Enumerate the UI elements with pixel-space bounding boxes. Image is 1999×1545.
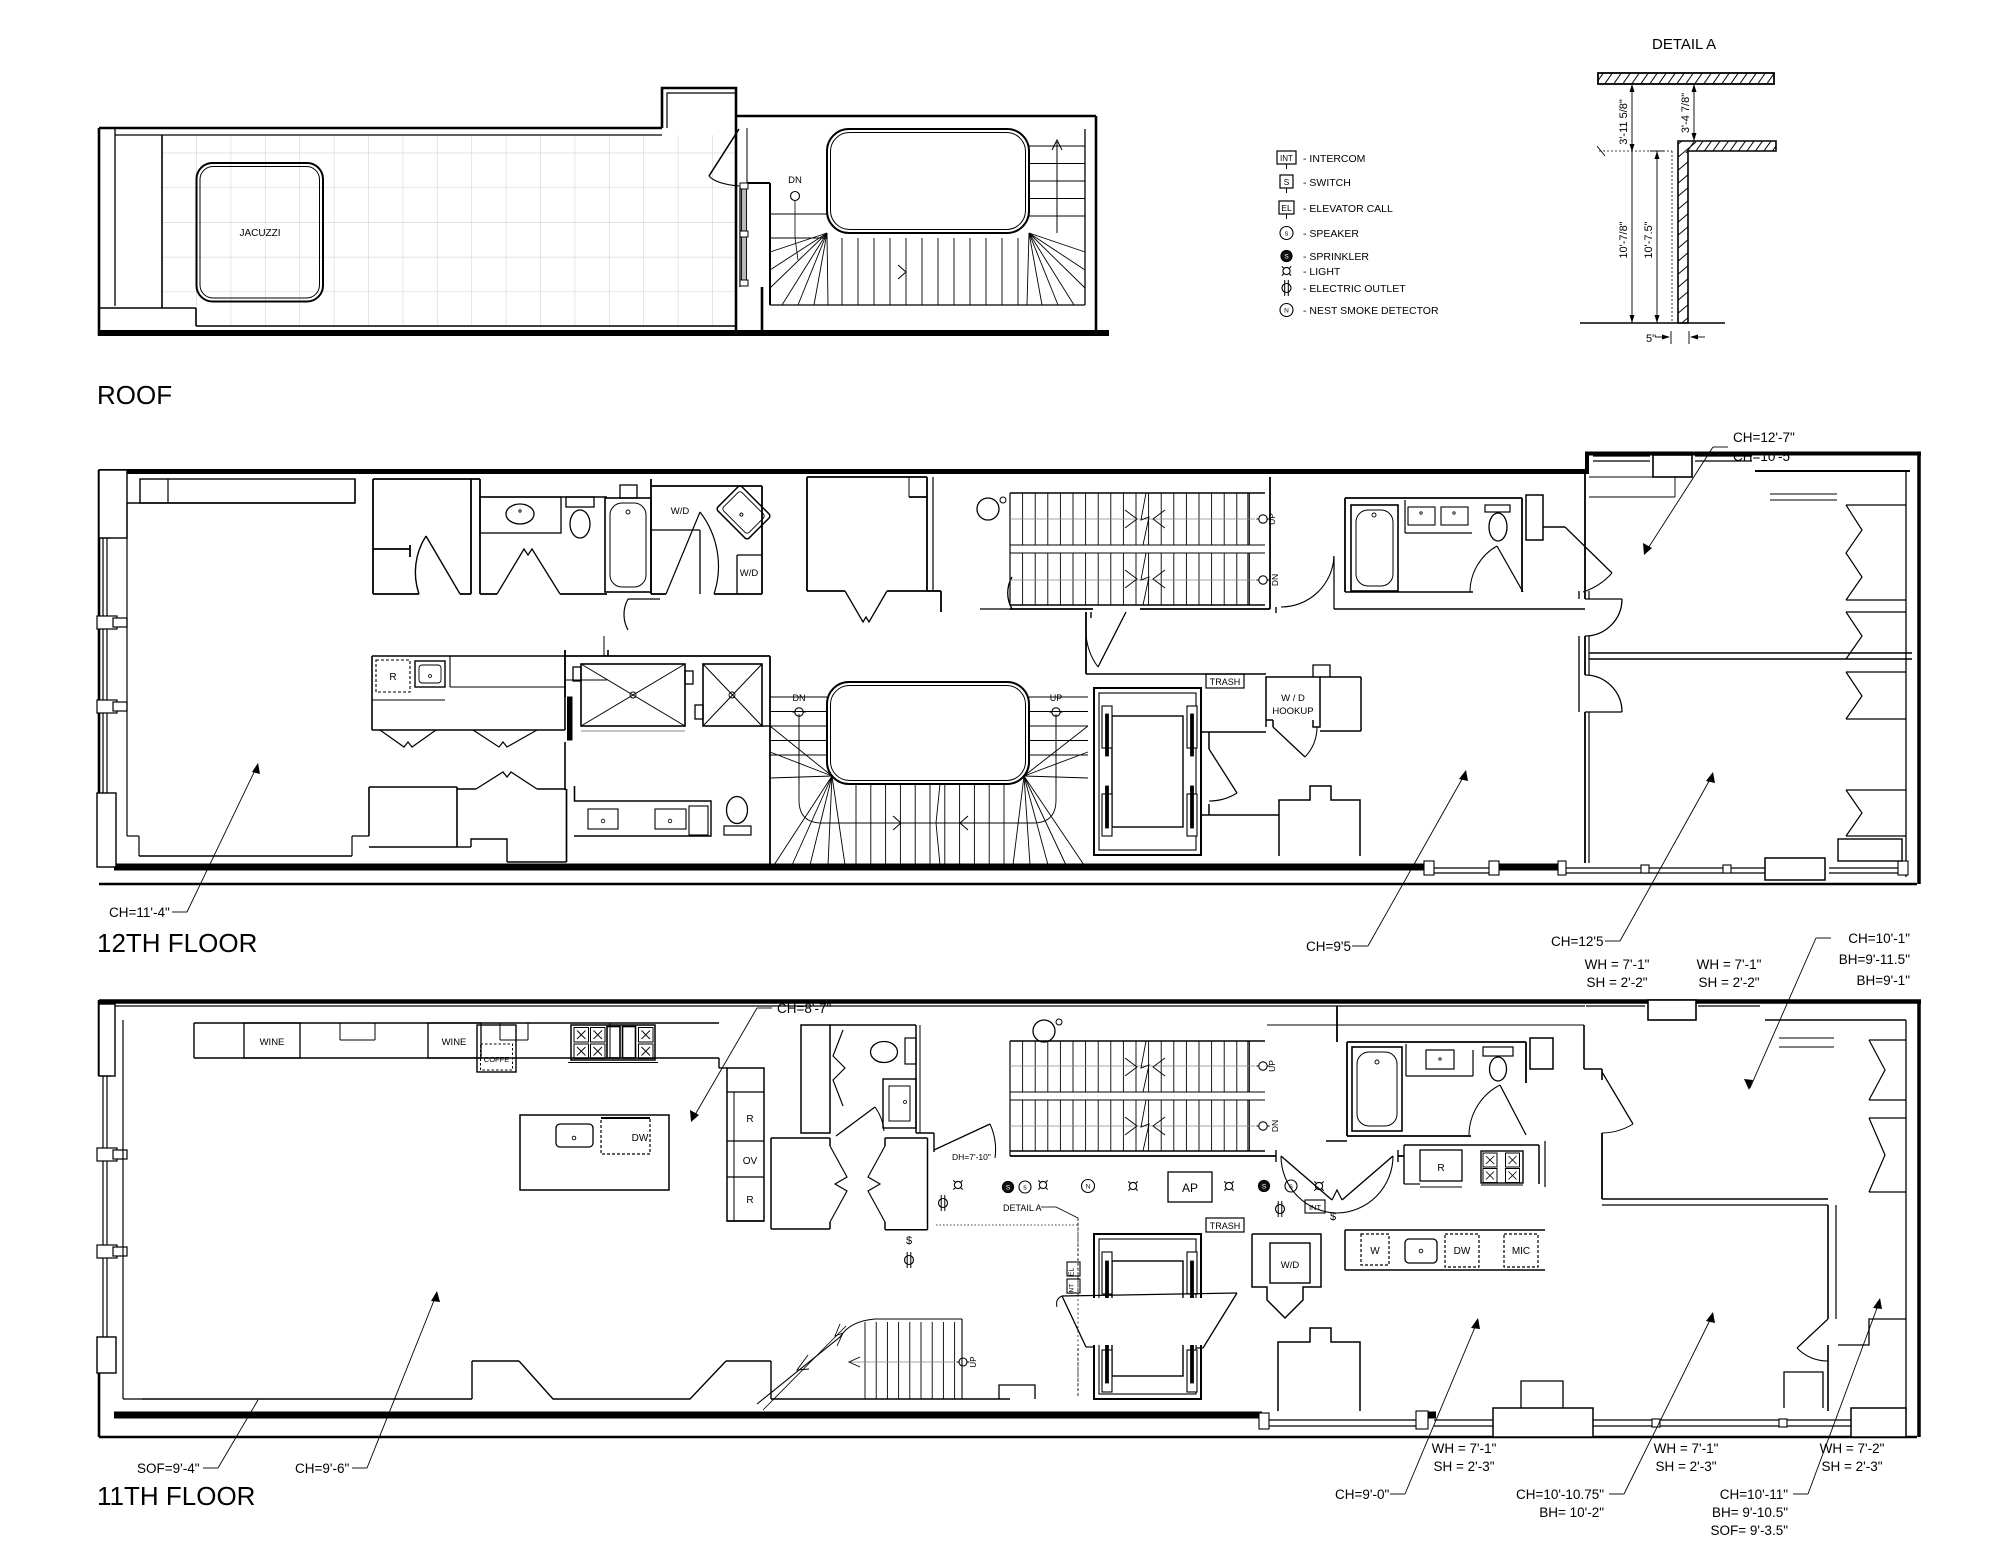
svg-text:DN: DN <box>788 175 802 186</box>
svg-text:CH=10'-1": CH=10'-1" <box>1848 931 1910 946</box>
svg-text:S: S <box>1006 1184 1011 1191</box>
svg-text:CH=10'-10.75": CH=10'-10.75" <box>1516 1487 1604 1502</box>
svg-text:INT: INT <box>1280 154 1293 163</box>
svg-text:R: R <box>746 1114 753 1125</box>
svg-text:5": 5" <box>1646 333 1656 345</box>
svg-text:COFFE: COFFE <box>484 1055 509 1064</box>
svg-text:BH= 10'-2": BH= 10'-2" <box>1539 1505 1604 1520</box>
svg-text:10'-7/8": 10'-7/8" <box>1618 221 1630 258</box>
svg-text:HOOKUP: HOOKUP <box>1272 706 1313 717</box>
svg-text:MIC: MIC <box>1512 1246 1530 1257</box>
svg-text:UP: UP <box>1050 693 1063 703</box>
svg-text:WH = 7'-1": WH = 7'-1" <box>1432 1441 1497 1456</box>
svg-text:S: S <box>1284 177 1290 187</box>
svg-text:R: R <box>746 1195 753 1206</box>
svg-text:WINE: WINE <box>442 1037 467 1048</box>
svg-text:3'-4 7/8": 3'-4 7/8" <box>1680 93 1692 133</box>
svg-text:W/D: W/D <box>671 506 690 517</box>
svg-text:CH=12'5: CH=12'5 <box>1551 934 1603 949</box>
svg-text:S: S <box>1284 253 1289 260</box>
svg-text:3'-11 5/8": 3'-11 5/8" <box>1618 99 1630 145</box>
svg-text:CH=9'-0": CH=9'-0" <box>1335 1487 1389 1502</box>
svg-text:AP: AP <box>1182 1181 1198 1195</box>
svg-text:SOF= 9'-3.5": SOF= 9'-3.5" <box>1710 1523 1788 1538</box>
svg-text:WH = 7'-1": WH = 7'-1" <box>1585 957 1650 972</box>
svg-text:BH=9'-11.5": BH=9'-11.5" <box>1839 952 1910 967</box>
svg-text:INT: INT <box>1069 1284 1076 1295</box>
svg-text:- SWITCH: - SWITCH <box>1303 177 1351 189</box>
svg-text:- INTERCOM: - INTERCOM <box>1303 153 1365 165</box>
svg-text:s: s <box>1023 1185 1027 1192</box>
svg-text:ROOF: ROOF <box>97 380 172 410</box>
svg-text:DN: DN <box>1270 574 1280 586</box>
svg-text:BH= 9'-10.5": BH= 9'-10.5" <box>1712 1505 1788 1520</box>
svg-text:OV: OV <box>743 1156 758 1167</box>
svg-text:10'-7.5": 10'-7.5" <box>1643 221 1655 258</box>
svg-text:DETAIL A: DETAIL A <box>1003 1203 1042 1213</box>
svg-text:WH = 7'-2": WH = 7'-2" <box>1820 1441 1885 1456</box>
svg-text:- NEST SMOKE DETECTOR: - NEST SMOKE DETECTOR <box>1303 305 1439 317</box>
svg-text:JACUZZI: JACUZZI <box>239 228 280 239</box>
svg-text:W: W <box>1370 1246 1380 1257</box>
svg-text:12TH FLOOR: 12TH FLOOR <box>97 928 257 958</box>
svg-text:WINE: WINE <box>260 1037 285 1048</box>
svg-text:BH=9'-1": BH=9'-1" <box>1856 973 1910 988</box>
svg-text:CH=10'-5": CH=10'-5" <box>1733 449 1795 464</box>
svg-text:UP: UP <box>1267 1060 1277 1072</box>
svg-text:R: R <box>389 672 396 683</box>
svg-text:SH = 2'-2": SH = 2'-2" <box>1698 975 1759 990</box>
svg-text:W/D: W/D <box>740 568 759 579</box>
svg-text:CH=9'5: CH=9'5 <box>1306 939 1351 954</box>
svg-text:- SPEAKER: - SPEAKER <box>1303 228 1359 240</box>
svg-text:N: N <box>1284 307 1289 314</box>
svg-text:DW: DW <box>632 1133 649 1144</box>
svg-text:$: $ <box>906 1235 912 1247</box>
svg-text:SH = 2'-3": SH = 2'-3" <box>1655 1459 1716 1474</box>
svg-text:DN: DN <box>793 693 806 703</box>
svg-text:EL: EL <box>1281 203 1292 213</box>
svg-text:DH=7'-10": DH=7'-10" <box>952 1152 991 1162</box>
svg-text:- SPRINKLER: - SPRINKLER <box>1303 251 1369 263</box>
svg-text:N: N <box>1086 1183 1091 1190</box>
svg-text:s: s <box>1285 231 1289 238</box>
svg-text:WH = 7'-1": WH = 7'-1" <box>1697 957 1762 972</box>
svg-text:UP: UP <box>1267 513 1277 525</box>
svg-text:SH = 2'-3": SH = 2'-3" <box>1821 1459 1882 1474</box>
svg-text:S: S <box>1262 1183 1267 1190</box>
svg-text:SH = 2'-2": SH = 2'-2" <box>1586 975 1647 990</box>
svg-text:SOF=9'-4": SOF=9'-4" <box>137 1461 200 1476</box>
svg-text:- ELEVATOR CALL: - ELEVATOR CALL <box>1303 203 1393 215</box>
svg-text:W/D: W/D <box>1281 1260 1300 1271</box>
svg-text:W / D: W / D <box>1281 693 1305 704</box>
svg-text:SH = 2'-3": SH = 2'-3" <box>1433 1459 1494 1474</box>
svg-text:UP: UP <box>969 1356 978 1367</box>
svg-text:DW: DW <box>1454 1246 1471 1257</box>
svg-text:DETAIL A: DETAIL A <box>1652 36 1716 53</box>
svg-text:R: R <box>1437 1163 1444 1174</box>
svg-text:CH=9'-6": CH=9'-6" <box>295 1461 349 1476</box>
svg-text:CH=10'-11": CH=10'-11" <box>1720 1487 1788 1502</box>
svg-text:11TH FLOOR: 11TH FLOOR <box>97 1481 255 1511</box>
svg-text:- LIGHT: - LIGHT <box>1303 266 1341 278</box>
svg-text:TRASH: TRASH <box>1210 1221 1241 1231</box>
svg-text:EL: EL <box>1069 1268 1076 1277</box>
svg-text:CH=8'-7": CH=8'-7" <box>777 1001 831 1016</box>
svg-text:TRASH: TRASH <box>1210 677 1241 687</box>
svg-text:- ELECTRIC OUTLET: - ELECTRIC OUTLET <box>1303 283 1406 295</box>
svg-text:DN: DN <box>1270 1120 1280 1132</box>
svg-text:WH = 7'-1": WH = 7'-1" <box>1654 1441 1719 1456</box>
svg-text:CH=12'-7": CH=12'-7" <box>1733 430 1795 445</box>
svg-text:CH=11'-4": CH=11'-4" <box>109 905 170 920</box>
